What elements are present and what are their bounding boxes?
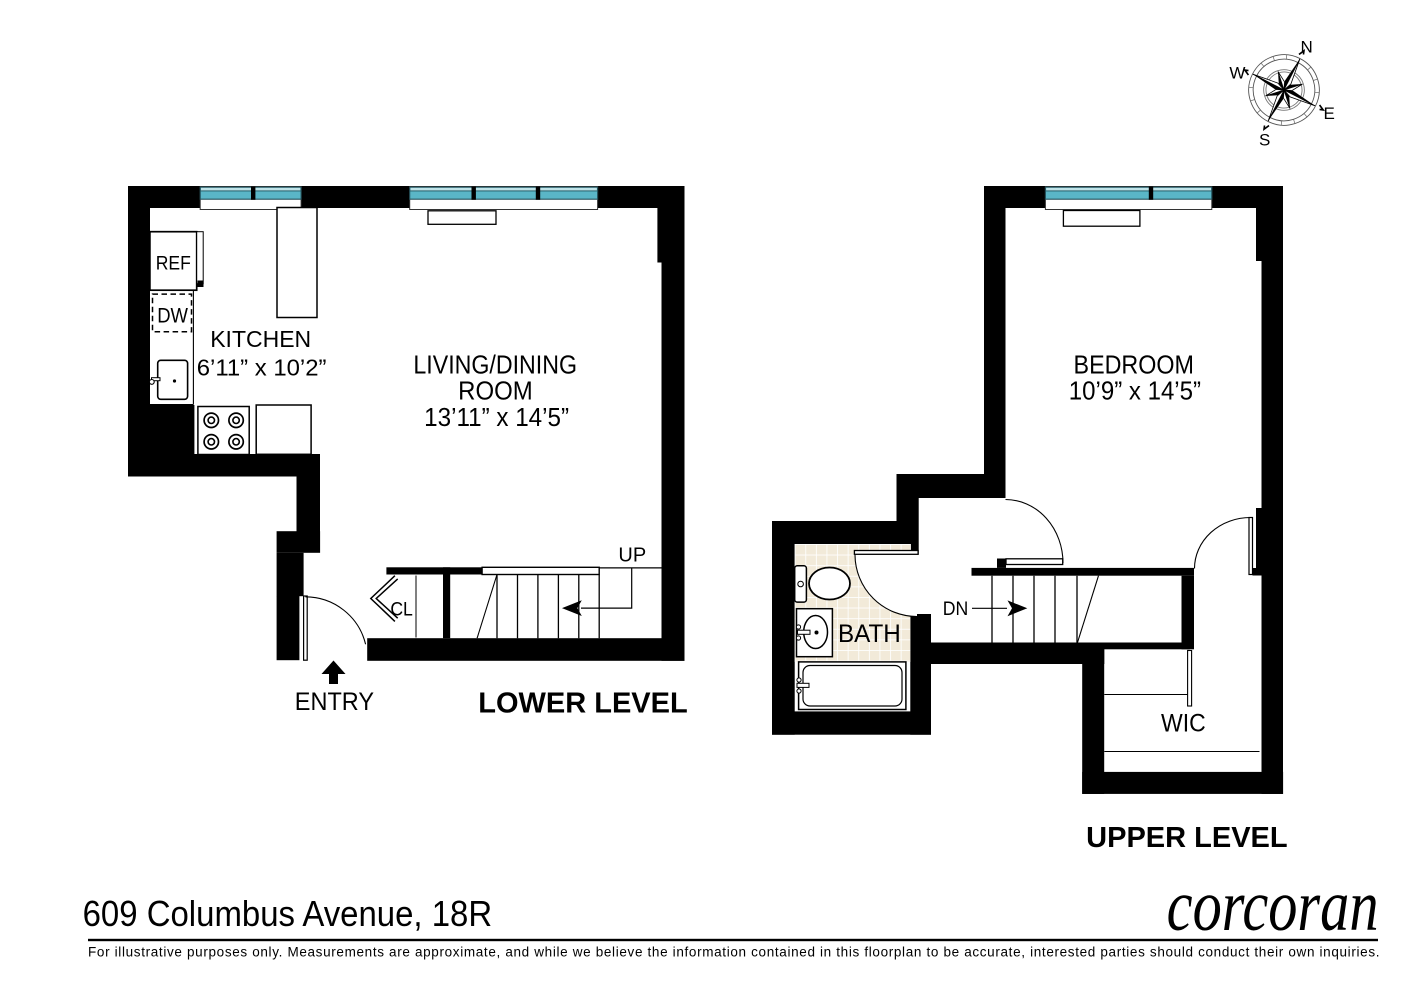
svg-text:N: N xyxy=(1301,38,1313,57)
svg-text:LOWER LEVEL: LOWER LEVEL xyxy=(478,687,687,719)
svg-text:S: S xyxy=(1259,130,1270,149)
svg-text:WIC: WIC xyxy=(1161,710,1206,738)
svg-text:BATH: BATH xyxy=(838,621,901,648)
svg-text:corcoran: corcoran xyxy=(1167,866,1379,947)
svg-text:6’11” x 10’2”: 6’11” x 10’2” xyxy=(197,355,327,380)
svg-text:13’11” x 14’5”: 13’11” x 14’5” xyxy=(424,403,569,432)
svg-text:UPPER LEVEL: UPPER LEVEL xyxy=(1086,822,1287,854)
svg-text:KITCHEN: KITCHEN xyxy=(210,326,311,352)
svg-text:ROOM: ROOM xyxy=(458,378,533,406)
svg-text:609 Columbus Avenue, 18R: 609 Columbus Avenue, 18R xyxy=(83,895,493,935)
svg-text:DW: DW xyxy=(157,304,188,327)
svg-text:CL: CL xyxy=(390,598,413,620)
svg-text:REF: REF xyxy=(156,251,191,273)
svg-text:For illustrative purposes only: For illustrative purposes only. Measurem… xyxy=(88,944,1380,959)
svg-text:DN: DN xyxy=(943,597,969,619)
svg-text:UP: UP xyxy=(618,544,646,566)
svg-text:ENTRY: ENTRY xyxy=(295,688,374,716)
svg-text:BEDROOM: BEDROOM xyxy=(1074,352,1194,380)
svg-text:LIVING/DINING: LIVING/DINING xyxy=(413,351,577,379)
svg-text:10’9” x 14’5”: 10’9” x 14’5” xyxy=(1069,378,1201,406)
svg-text:W: W xyxy=(1229,64,1245,83)
svg-text:E: E xyxy=(1324,104,1335,123)
